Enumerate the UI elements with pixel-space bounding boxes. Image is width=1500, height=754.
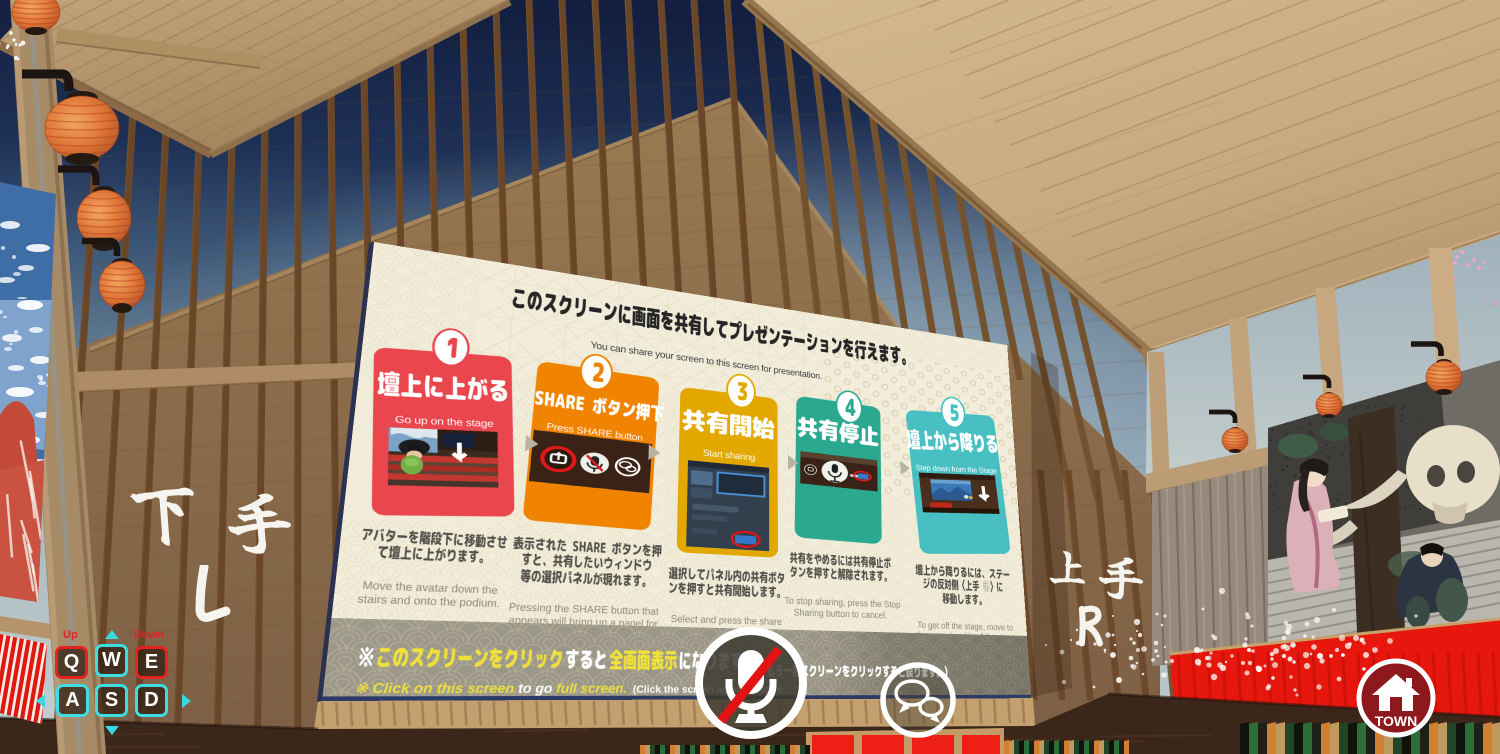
svg-text:TOWN: TOWN [1375,713,1418,729]
